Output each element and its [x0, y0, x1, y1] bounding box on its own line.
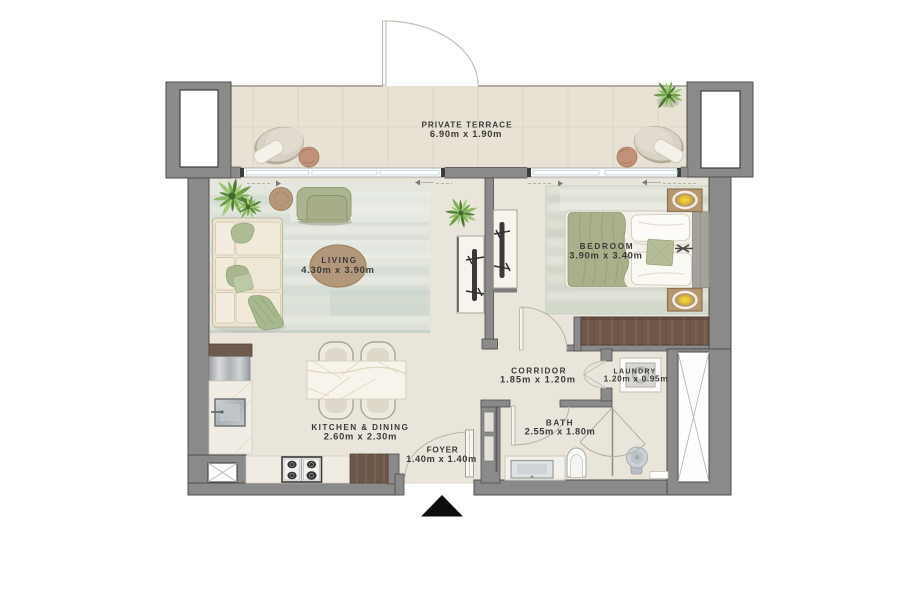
svg-text:4.30m x 3.90m: 4.30m x 3.90m — [301, 265, 374, 275]
svg-text:1.85m x 1.20m: 1.85m x 1.20m — [500, 375, 576, 385]
svg-text:1.40m x 1.40m: 1.40m x 1.40m — [406, 454, 477, 464]
svg-text:1.20m x 0.95m: 1.20m x 0.95m — [604, 374, 669, 384]
svg-text:LIVING: LIVING — [321, 256, 357, 265]
svg-text:2.60m x 2.30m: 2.60m x 2.30m — [324, 431, 397, 441]
svg-text:6.90m x 1.90m: 6.90m x 1.90m — [430, 129, 502, 139]
svg-text:3.90m x 3.40m: 3.90m x 3.40m — [569, 250, 642, 260]
svg-text:2.55m x 1.80m: 2.55m x 1.80m — [525, 427, 596, 437]
